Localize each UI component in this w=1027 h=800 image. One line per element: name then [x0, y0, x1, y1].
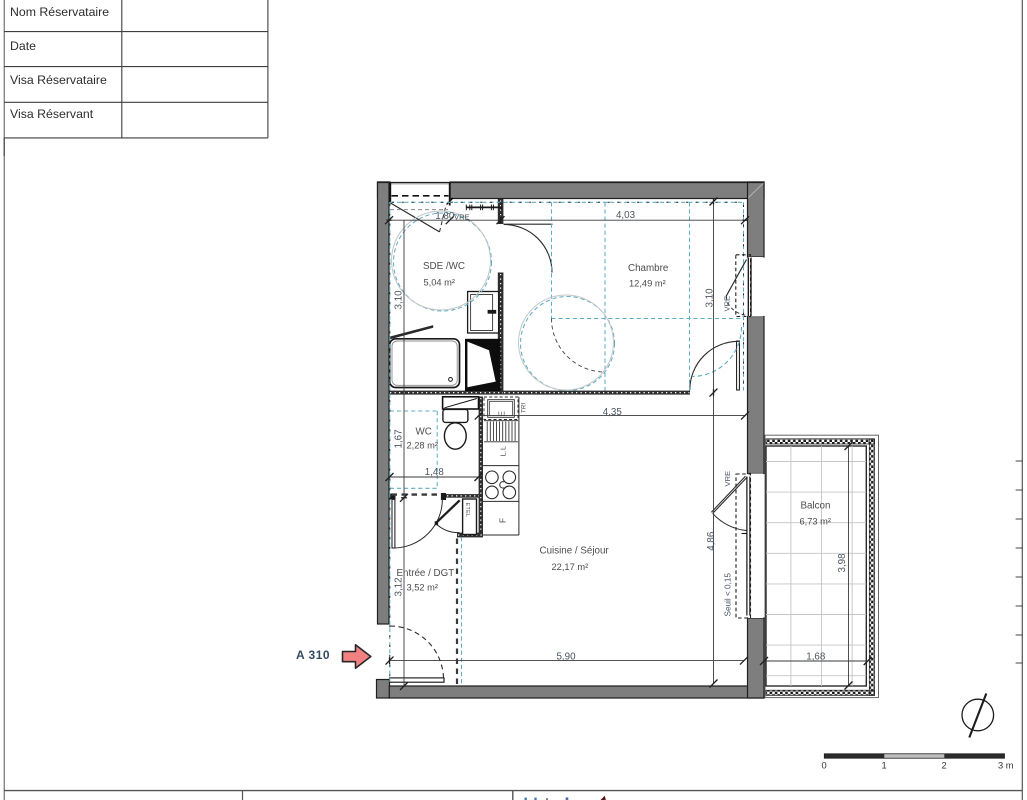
svg-text:22,17 m²: 22,17 m²	[552, 562, 589, 572]
svg-text:3,12: 3,12	[394, 577, 405, 596]
svg-text:Chambre: Chambre	[628, 263, 669, 274]
svg-text:Cuisine / Séjour: Cuisine / Séjour	[540, 546, 610, 557]
svg-text:3 m: 3 m	[998, 761, 1014, 771]
svg-text:Seuil < 0,15: Seuil < 0,15	[723, 573, 732, 617]
svg-text:Balcon: Balcon	[801, 501, 831, 512]
svg-text:1: 1	[882, 761, 887, 771]
svg-text:3,10: 3,10	[394, 290, 405, 310]
svg-text:3,10: 3,10	[705, 288, 716, 308]
svg-text:VRE: VRE	[454, 213, 470, 222]
svg-text:5,90: 5,90	[556, 652, 576, 663]
svg-text:3,98: 3,98	[837, 553, 848, 573]
svg-text:SDE /WC: SDE /WC	[423, 261, 465, 272]
svg-text:Date: Date	[10, 39, 36, 53]
svg-text:ETEL: ETEL	[464, 503, 470, 518]
svg-text:1,67: 1,67	[394, 429, 405, 448]
svg-text:Nom Réservataire: Nom Réservataire	[10, 5, 109, 19]
svg-text:4,35: 4,35	[603, 407, 623, 418]
svg-text:TRI: TRI	[521, 402, 528, 413]
svg-text:2,28 m²: 2,28 m²	[407, 441, 439, 451]
svg-text:VRE: VRE	[723, 296, 732, 312]
svg-text:VRE: VRE	[723, 471, 732, 487]
svg-text:F: F	[498, 518, 508, 523]
svg-text:2: 2	[942, 761, 947, 771]
svg-text:4,86: 4,86	[706, 531, 717, 551]
svg-text:1,80: 1,80	[435, 211, 455, 222]
svg-text:6,73 m²: 6,73 m²	[800, 517, 832, 527]
svg-text:WC: WC	[416, 427, 432, 438]
svg-text:1,48: 1,48	[425, 467, 445, 478]
svg-text:Visa Réservataire: Visa Réservataire	[10, 73, 107, 87]
svg-text:Entrée / DGT: Entrée / DGT	[397, 568, 455, 579]
svg-text:3,52 m²: 3,52 m²	[407, 583, 439, 593]
svg-text:L.L: L.L	[499, 446, 508, 457]
svg-text:12,49 m²: 12,49 m²	[629, 279, 666, 289]
svg-text:1,68: 1,68	[806, 652, 826, 663]
svg-text:Visa Réservant: Visa Réservant	[10, 107, 94, 121]
svg-text:0: 0	[822, 761, 827, 771]
svg-text:4,03: 4,03	[616, 210, 636, 221]
svg-text:5,04 m²: 5,04 m²	[424, 278, 456, 288]
svg-text:A 310: A 310	[296, 648, 330, 662]
